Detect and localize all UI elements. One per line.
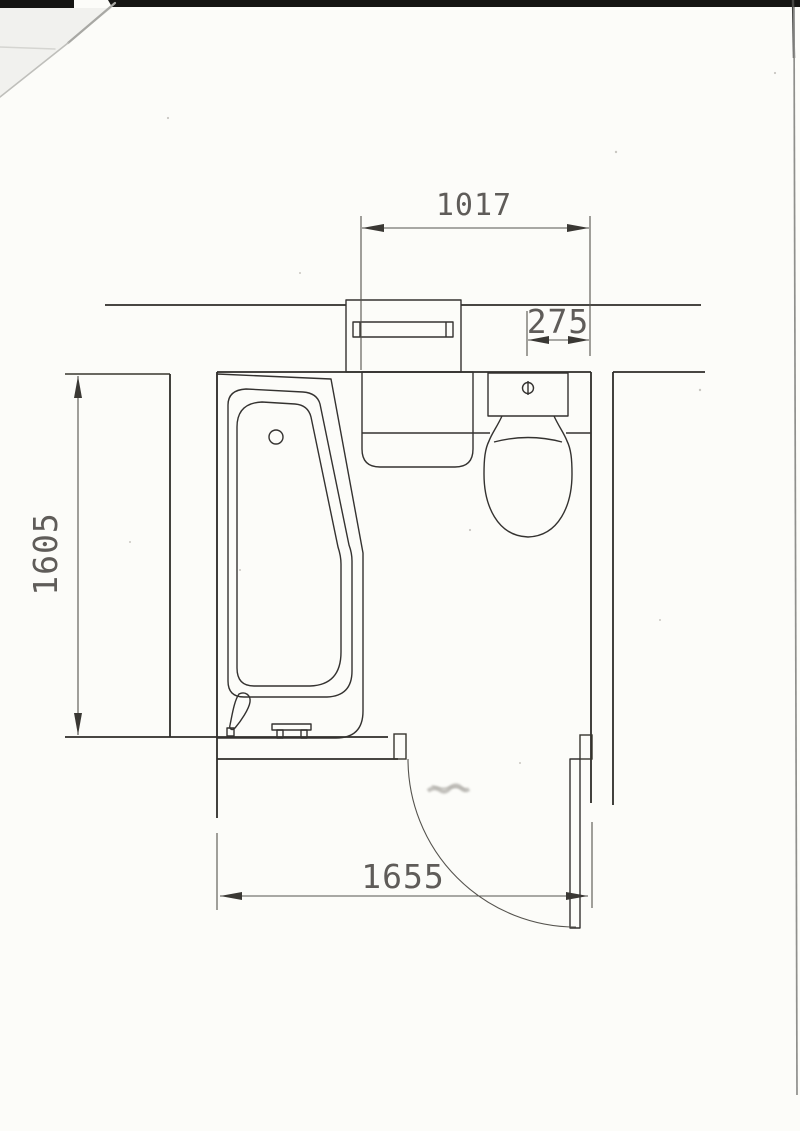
arrowhead-right: [566, 892, 588, 900]
washbasin: [362, 372, 591, 467]
bathtub-outer-edge: [217, 374, 363, 738]
window-frame: [346, 300, 461, 372]
door: [408, 759, 580, 928]
door-jamb-left: [394, 734, 406, 759]
bathtub-overflow-drain: [269, 430, 283, 444]
toilet-bowl: [484, 416, 572, 537]
floor-plan-drawing: 1017 275 1605 1655: [0, 0, 800, 1131]
bathtub: [217, 374, 363, 738]
window-glazing: [353, 322, 453, 337]
bathtub-basin: [237, 402, 341, 686]
washbasin-outline: [362, 372, 473, 467]
dimension-text-1017: 1017: [436, 188, 512, 223]
dimension-room-depth: 1605: [26, 376, 82, 735]
walls: [65, 305, 705, 818]
dimension-text-1655: 1655: [361, 857, 444, 896]
toilet-seat-back: [494, 438, 562, 443]
dimension-text-1605: 1605: [26, 512, 65, 595]
scanner-band-right: [108, 0, 800, 7]
page-edge-shadow: [794, 7, 797, 1095]
scan-artifacts: [0, 0, 800, 1095]
door-leaf: [570, 759, 580, 928]
scanner-band-left: [0, 0, 74, 8]
dimension-toilet-offset: 275: [527, 302, 590, 356]
dimension-top-width: 1017: [361, 188, 590, 370]
arrowhead-left: [362, 224, 384, 232]
bathtub-waste-fitting: [272, 724, 311, 738]
toilet: [484, 373, 572, 537]
pencil-smudge: [428, 786, 469, 792]
arrowhead-right: [567, 224, 589, 232]
arrowhead-bottom: [74, 713, 82, 735]
dimension-bottom-width: 1655: [217, 822, 592, 910]
bathtub-rim: [228, 389, 352, 697]
bathtub-tap-lever: [230, 693, 250, 729]
dimension-text-275: 275: [527, 302, 590, 341]
arrowhead-top: [74, 376, 82, 398]
window: [346, 300, 461, 372]
arrowhead-left: [220, 892, 242, 900]
paper-speckles: [129, 72, 776, 764]
door-swing-arc: [408, 759, 576, 927]
scanned-floor-plan-page: 1017 275 1605 1655: [0, 0, 800, 1131]
